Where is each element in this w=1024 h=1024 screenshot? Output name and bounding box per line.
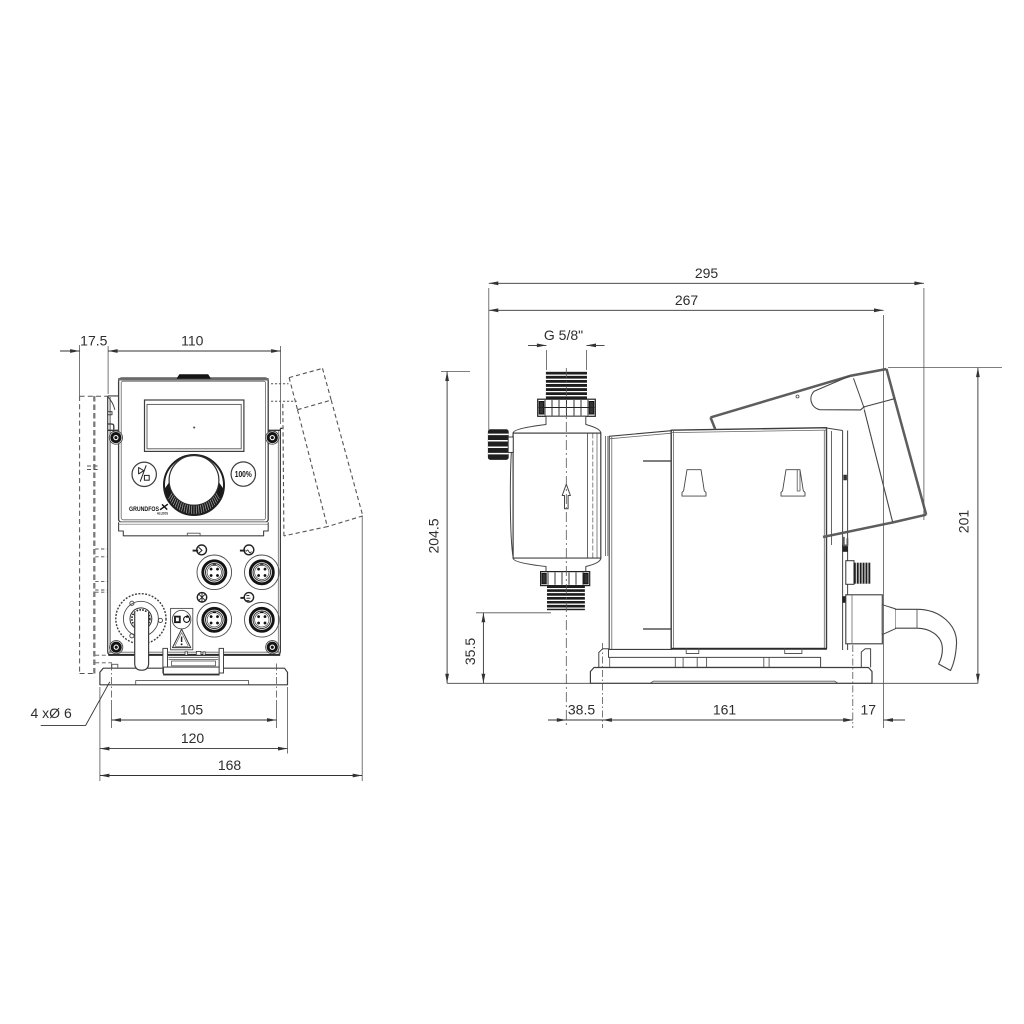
svg-text:100%: 100% (235, 470, 252, 479)
svg-text:17.5: 17.5 (80, 332, 107, 348)
svg-text:201: 201 (956, 510, 972, 534)
svg-text:120: 120 (181, 730, 205, 746)
svg-text:204.5: 204.5 (426, 518, 442, 553)
svg-text:161: 161 (713, 702, 737, 718)
svg-text:G 5/8": G 5/8" (544, 327, 583, 343)
svg-text:GRUNDFOS: GRUNDFOS (129, 506, 160, 513)
svg-text:168: 168 (218, 757, 242, 773)
svg-text:4 xØ 6: 4 xØ 6 (31, 705, 72, 721)
svg-text:ALLDOS: ALLDOS (157, 511, 169, 515)
svg-text:267: 267 (675, 292, 699, 308)
svg-text:295: 295 (695, 265, 719, 281)
svg-text:105: 105 (180, 702, 204, 718)
svg-text:35.5: 35.5 (462, 638, 478, 665)
svg-text:110: 110 (181, 332, 204, 348)
svg-text:17: 17 (861, 702, 877, 718)
svg-text:38.5: 38.5 (568, 702, 595, 718)
